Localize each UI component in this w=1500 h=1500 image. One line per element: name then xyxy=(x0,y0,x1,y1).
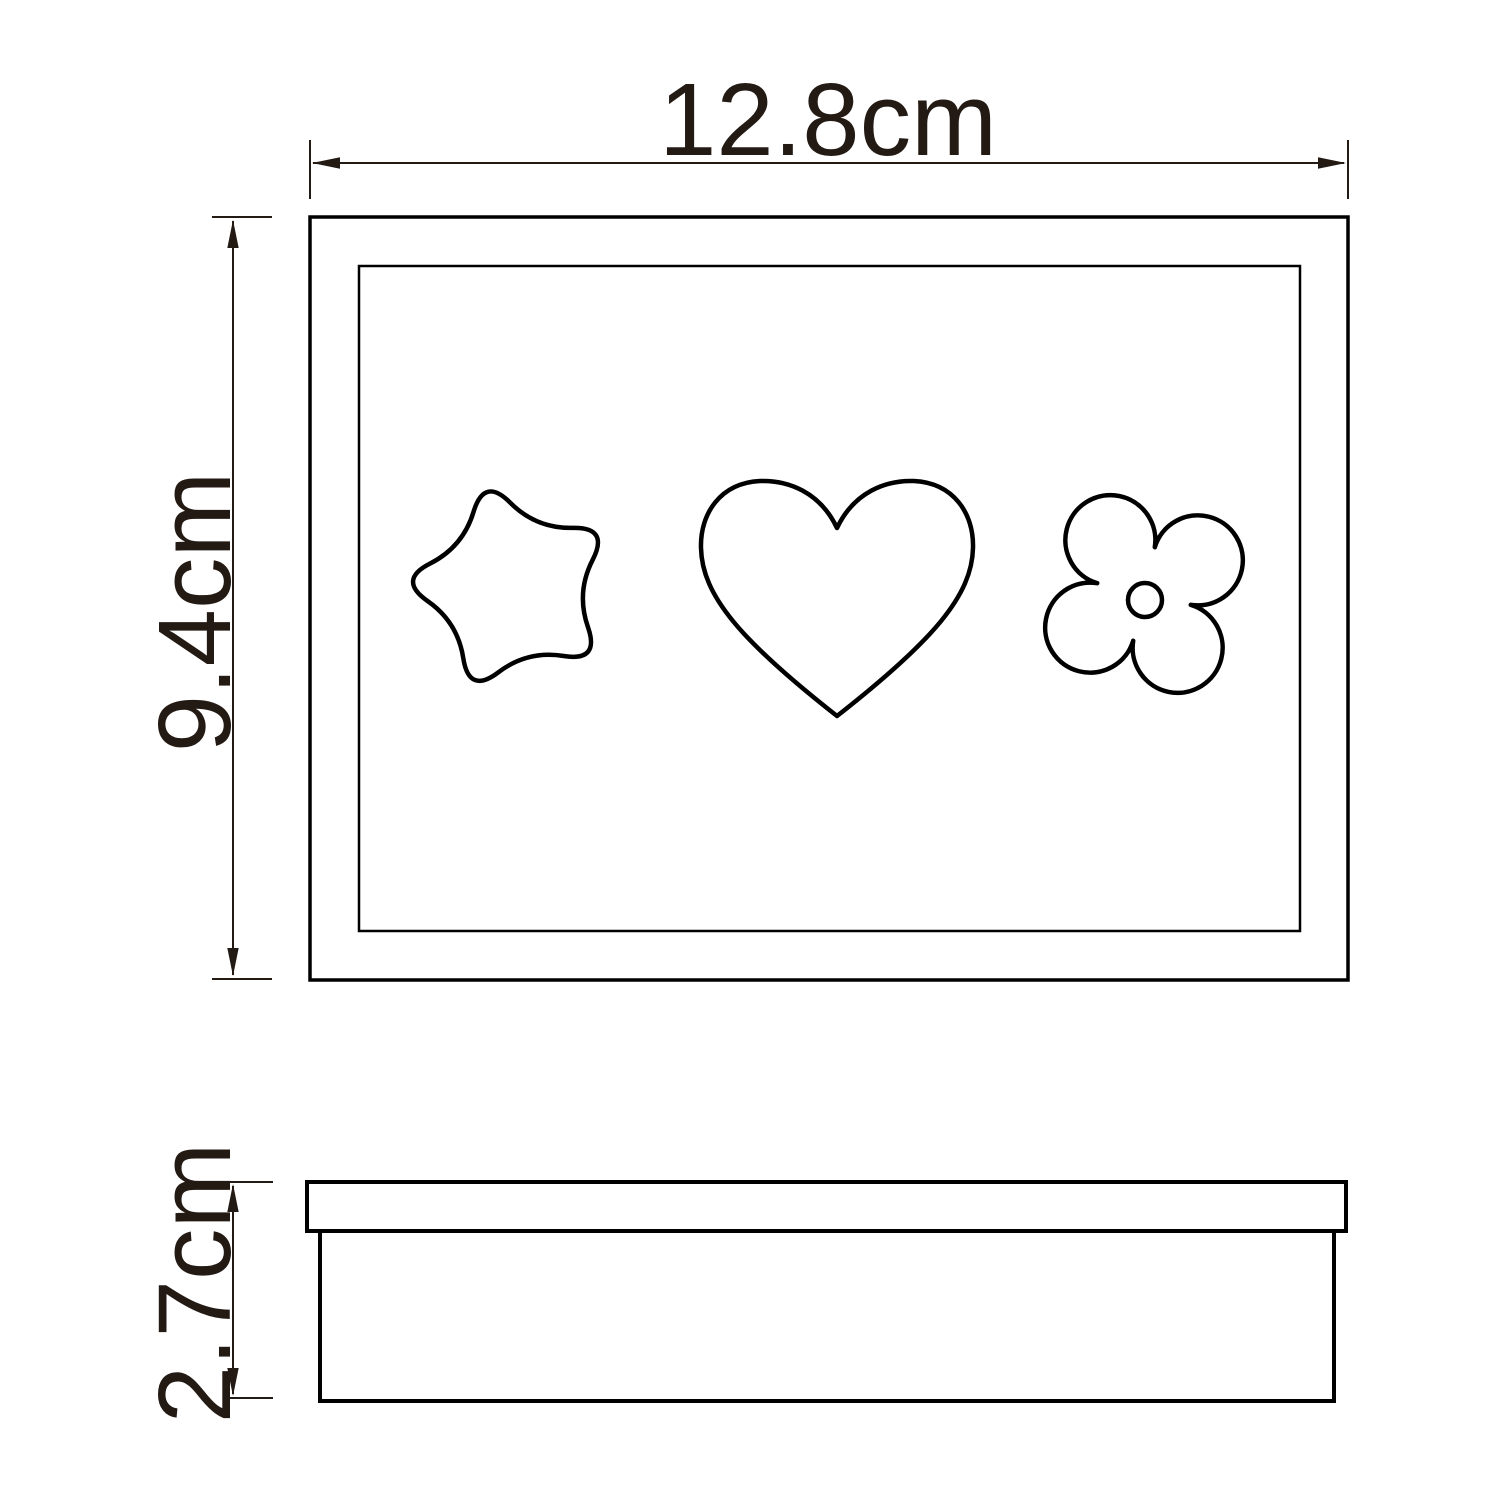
side-view-body xyxy=(320,1231,1334,1401)
height-dimension-label: 9.4cm xyxy=(137,472,252,752)
width-arrowhead-left xyxy=(312,157,340,168)
side-view-lid xyxy=(307,1182,1346,1231)
height-arrowhead-bottom xyxy=(227,948,238,976)
top-view xyxy=(310,217,1348,980)
depth-dimension-label: 2.7cm xyxy=(137,1143,252,1423)
tray-outer-edge xyxy=(310,217,1348,980)
depth-dimension: 2.7cm xyxy=(137,1143,273,1423)
product-dimension-diagram: 12.8cm 9.4cm 2.7cm xyxy=(0,0,1500,1500)
width-arrowhead-right xyxy=(1318,157,1346,168)
flower-cutout xyxy=(1045,495,1243,693)
height-dimension: 9.4cm xyxy=(137,217,272,979)
star-cutout xyxy=(413,491,598,680)
drawing-canvas: 12.8cm 9.4cm 2.7cm xyxy=(0,0,1500,1500)
tray-inner-edge xyxy=(359,266,1300,931)
width-dimension: 12.8cm xyxy=(310,62,1348,199)
side-view xyxy=(307,1182,1346,1401)
width-dimension-label: 12.8cm xyxy=(659,62,997,177)
height-arrowhead-top xyxy=(227,220,238,248)
flower-center-hole xyxy=(1128,583,1162,617)
heart-cutout xyxy=(701,481,973,716)
